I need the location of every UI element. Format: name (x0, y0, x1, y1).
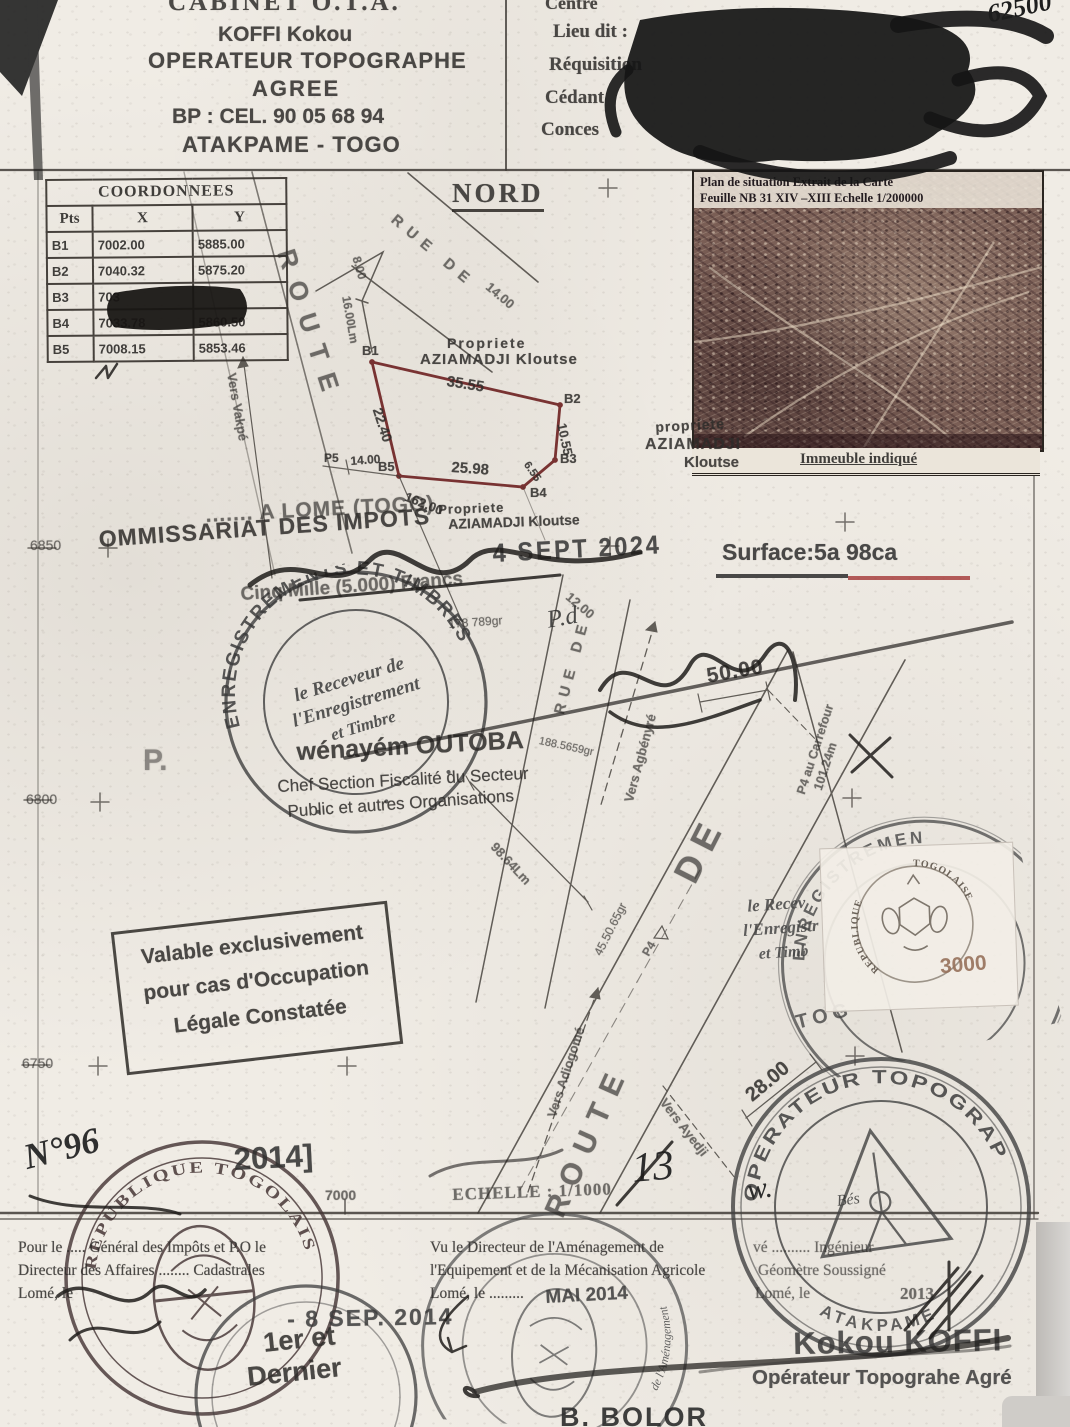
footer-left-line3: Lomé, le (18, 1286, 73, 1302)
prop1-line2: AZIAMADJI Kloutse (420, 352, 578, 367)
date-mai-2014: MAI 2014 (545, 1284, 628, 1307)
x-cell: 7008.15 (94, 335, 194, 362)
field-concession: Conces (541, 120, 599, 139)
footer-right-line1: vé .......... Ingénieur (753, 1240, 874, 1256)
field-requisition: Réquisition (549, 55, 642, 74)
bolor-name: B. BOLOR (560, 1404, 708, 1427)
footer-center-line2: l'Equipement et de la Mécanisation Agric… (430, 1263, 705, 1279)
grads-small: 178 789gr (448, 614, 503, 630)
y-cell: 5885.00 (193, 230, 287, 257)
surveyor-city: ATAKPAME - TOGO (182, 134, 401, 156)
fiscal-coat-of-arms (878, 874, 950, 951)
col-y: Y (192, 204, 286, 231)
surveyor-role2: AGREE (252, 78, 340, 100)
date-2013: 2013 (900, 1285, 934, 1302)
field-lieu-dit: Lieu dit : (553, 22, 628, 41)
pt-cell: B4 (47, 310, 93, 336)
col-pts: Pts (46, 206, 92, 232)
prop1-line1: Propriete (447, 336, 526, 350)
y-cell (193, 282, 287, 309)
footer-right-line3: Lomé, le (755, 1286, 810, 1302)
coordinates-table: COORDONNEES Pts X Y B17002.005885.00 B27… (45, 177, 289, 363)
footer-center-line3: Lomé, le ......... (430, 1286, 524, 1302)
field-centre: Centre (545, 0, 598, 12)
cabinet-title: CABINET O.T.A. (168, 0, 401, 15)
table-row: B3703 (47, 282, 287, 310)
x-cell: 703 (93, 283, 193, 310)
grid-6850: 6850 (30, 538, 61, 552)
p5-width: 14.00 (350, 453, 381, 467)
col-x: X (92, 205, 192, 232)
y-cell: 5860.50 (193, 308, 287, 335)
point-p5: P5 (324, 452, 339, 464)
scanned-cadastral-plan: CABINET O.T.A. KOFFI Kokou OPERATEUR TOP… (0, 0, 1070, 1427)
fiscal-ring-right: TOGOLAISE (912, 856, 975, 905)
handwritten-pd: P.d (545, 603, 580, 633)
surveyor-contact: BP : CEL. 90 05 68 94 (172, 106, 384, 127)
surface-underline-black (716, 574, 848, 578)
footer-center-line1: Vu le Directeur de l'Aménagement de (430, 1240, 664, 1256)
date-2014-stamp: 2014] (233, 1140, 314, 1175)
surface-label: Surface:5a 98ca (722, 541, 897, 564)
prop2-line3: Kloutse (684, 455, 739, 470)
prop2-line1: propriete (655, 416, 725, 434)
x-cell: 7040.32 (93, 257, 193, 284)
svg-text:TOGOLAISE: TOGOLAISE (912, 856, 975, 905)
pt-cell: B1 (47, 232, 93, 258)
footer-left-line1: Pour le ..... Général des Impôts et P.O … (18, 1240, 266, 1256)
situation-map-inset: Plan de situation Extrait de la Carte Fe… (692, 170, 1044, 452)
outoba-prefix: P. (143, 746, 167, 776)
point-b2: B2 (564, 392, 581, 405)
svg-text:REPUBLIQUE: REPUBLIQUE (849, 897, 882, 976)
map-footer-bar: Immeuble indiqué (692, 448, 1040, 476)
pt-cell: B3 (47, 284, 93, 310)
x-cell: 7002.00 (93, 231, 193, 258)
point-b1: B1 (362, 344, 379, 357)
grid-6750: 6750 (22, 1056, 53, 1070)
pt-cell: B2 (47, 258, 93, 284)
koffi-role: Opérateur Topograhe Agré (752, 1368, 1012, 1389)
koffi-name: Kokou KOFFI (793, 1324, 1003, 1359)
surveyor-role: OPERATEUR TOPOGRAPHE (148, 50, 467, 72)
date-8-sep-2014: - 8 SEP. 2014 (287, 1305, 454, 1331)
fiscal-stamp: REPUBLIQUE TOGOLAISE 3000 (819, 842, 1019, 1013)
surveyor-name: KOFFI Kokou (218, 24, 352, 45)
north-label: NORD (452, 180, 544, 212)
surface-underline-red (848, 576, 970, 580)
grid-7000: 7000 (325, 1188, 356, 1202)
table-row: B47033.785860.50 (47, 308, 287, 336)
y-cell: 5853.46 (194, 334, 288, 361)
map-caption-line2: Feuille NB 31 XIV –XIII Echelle 1/200000 (700, 191, 1036, 207)
handwritten-w: w. (745, 1172, 774, 1205)
meas-bottom: 25.98 (451, 460, 490, 478)
table-row: B57008.155853.46 (48, 334, 288, 362)
x-cell: 7033.78 (93, 309, 193, 336)
point-b4: B4 (530, 486, 547, 499)
grid-6800: 6800 (26, 792, 57, 806)
table-row: B17002.005885.00 (47, 230, 287, 258)
fiscal-value: 3000 (939, 951, 988, 978)
map-caption: Plan de situation Extrait de la Carte Fe… (694, 172, 1042, 208)
field-cedant: Cédant (545, 88, 604, 107)
map-caption-line1: Plan de situation Extrait de la Carte (700, 175, 1036, 191)
coordinates-title: COORDONNEES (46, 178, 286, 206)
footer-right-line2: Géomètre Soussigné (758, 1263, 886, 1279)
handwritten-13: 13 (630, 1144, 676, 1190)
prop2-line2: AZIAMADJI (645, 437, 741, 453)
map-texture (694, 172, 1042, 450)
footer-left-line2: Directeur des Affaires ........ Cadastra… (18, 1263, 265, 1279)
fiscal-ring-left: REPUBLIQUE (849, 897, 882, 976)
pt-cell: B5 (48, 336, 94, 362)
map-footer-label: Immeuble indiqué (800, 452, 917, 467)
table-row: B27040.325875.20 (47, 256, 287, 284)
photo-corner-gray (1002, 1396, 1070, 1427)
